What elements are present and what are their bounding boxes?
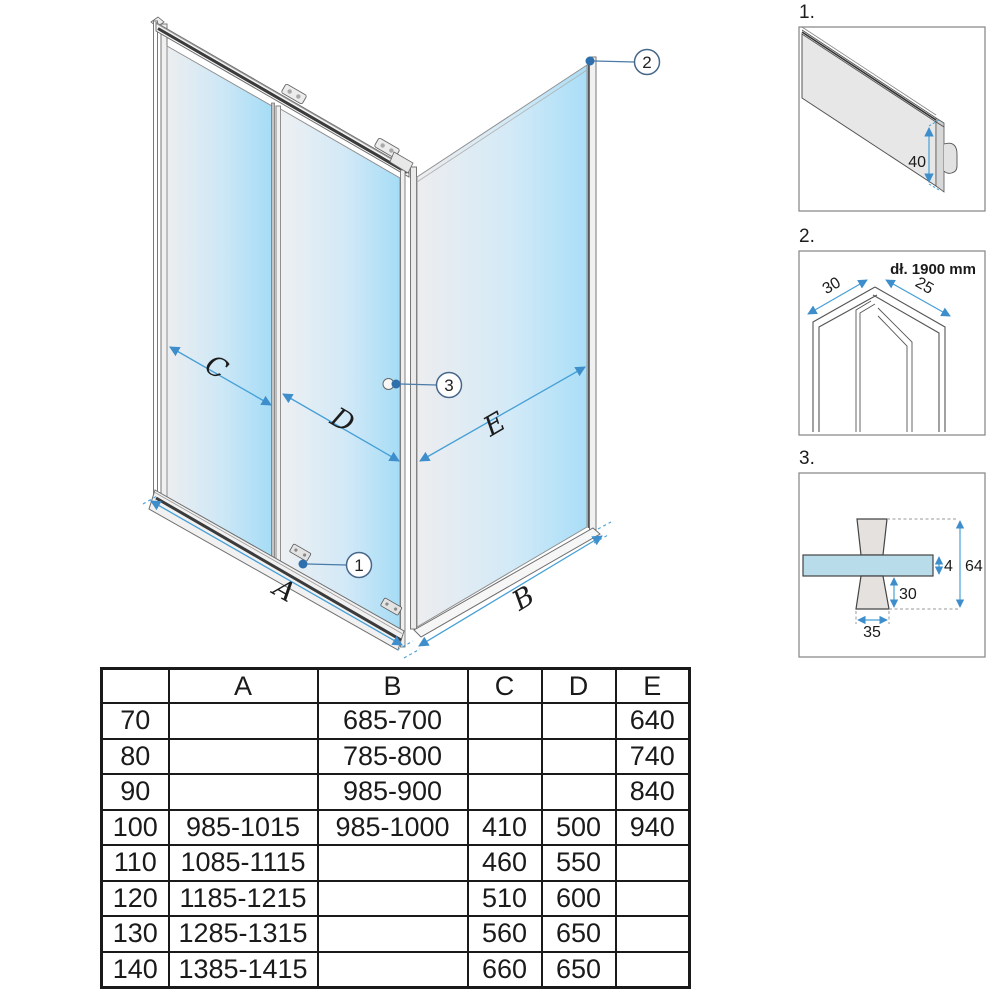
cell-e: [616, 952, 690, 988]
table-row: 110 1085-1115 460 550: [102, 845, 690, 881]
callout-dot: [392, 380, 401, 389]
cell-a: [169, 774, 318, 810]
cell-a: 1085-1115: [169, 845, 318, 881]
cell-b: 985-900: [318, 774, 468, 810]
detail-2: 2. dł. 1900 mm 30: [798, 226, 988, 436]
detail-3-label: 3.: [799, 448, 988, 470]
panel-seam-profile: [272, 103, 281, 576]
cell-c: [468, 739, 542, 775]
dim-4: 4: [944, 558, 953, 575]
cell-d: 650: [542, 916, 616, 952]
cell-e: [616, 881, 690, 917]
dim-40: 40: [908, 154, 926, 171]
knob-top: [857, 519, 887, 555]
fixed-panel-glass: [167, 46, 272, 568]
detail-2-label: 2.: [799, 226, 988, 248]
row-label: 140: [102, 952, 169, 988]
cell-e: 940: [616, 810, 690, 846]
side-wall-profile: [589, 57, 597, 531]
detail-3: 3.: [798, 448, 988, 658]
table-row: 100 985-1015 985-1000 410 500 940: [102, 810, 690, 846]
cell-d: [542, 774, 616, 810]
row-label: 120: [102, 881, 169, 917]
glass-section: [803, 555, 933, 576]
cell-a: [169, 739, 318, 775]
row-label: 130: [102, 916, 169, 952]
dim-64: 64: [965, 558, 983, 575]
cell-b: [318, 845, 468, 881]
row-label: 100: [102, 810, 169, 846]
cell-d: 500: [542, 810, 616, 846]
dim-label-b: B: [506, 580, 540, 617]
length-note: dł. 1900 mm: [890, 261, 976, 278]
cell-d: [542, 703, 616, 739]
cell-c: 660: [468, 952, 542, 988]
cell-a: [169, 703, 318, 739]
cell-d: 650: [542, 952, 616, 988]
header-a: A: [169, 669, 318, 704]
cell-a: 1185-1215: [169, 881, 318, 917]
callout-number-2: 2: [642, 53, 651, 72]
row-label: 110: [102, 845, 169, 881]
cell-c: [468, 774, 542, 810]
cell-b: [318, 881, 468, 917]
cell-e: 840: [616, 774, 690, 810]
cell-a: 985-1015: [169, 810, 318, 846]
cell-c: 560: [468, 916, 542, 952]
sliding-door-glass: [281, 109, 401, 644]
cell-b: 785-800: [318, 739, 468, 775]
cell-b: [318, 916, 468, 952]
row-label: 70: [102, 703, 169, 739]
side-panel-glass: [417, 65, 587, 627]
cell-c: 410: [468, 810, 542, 846]
wall-clip-hook: [944, 143, 957, 173]
table-row: 130 1285-1315 560 650: [102, 916, 690, 952]
cell-e: [616, 845, 690, 881]
callout-dot: [299, 560, 308, 569]
callout-number-3: 3: [444, 376, 453, 395]
table-row: 140 1385-1415 660 650: [102, 952, 690, 988]
cell-c: 460: [468, 845, 542, 881]
shower-enclosure-drawing: C D E A B 1 3 2: [0, 0, 760, 665]
row-label: 90: [102, 774, 169, 810]
cell-e: 640: [616, 703, 690, 739]
left-wall-profile: [151, 17, 167, 507]
cell-c: [468, 703, 542, 739]
table-header-row: A B C D E: [102, 669, 690, 704]
cell-a: 1385-1415: [169, 952, 318, 988]
table-row: 120 1185-1215 510 600: [102, 881, 690, 917]
detail-1-label: 1.: [799, 2, 988, 24]
cell-b: 985-1000: [318, 810, 468, 846]
callout-number-1: 1: [354, 556, 363, 575]
table-row: 70 685-700 640: [102, 703, 690, 739]
door-right-stile: [401, 170, 406, 647]
detail-3-drawing: 4 64 30 35: [798, 472, 986, 658]
cell-b: 685-700: [318, 703, 468, 739]
cell-d: [542, 739, 616, 775]
cell-c: 510: [468, 881, 542, 917]
dim-30b: 30: [899, 586, 917, 603]
cell-e: [616, 916, 690, 952]
detail-1-drawing: 40: [798, 26, 986, 212]
dimensions-table: A B C D E 70 685-700 640 80 785-800: [100, 667, 691, 989]
cell-e: 740: [616, 739, 690, 775]
cell-b: [318, 952, 468, 988]
header-b: B: [318, 669, 468, 704]
header-d: D: [542, 669, 616, 704]
cell-d: 550: [542, 845, 616, 881]
callout-dot: [586, 57, 595, 66]
header-blank: [102, 669, 169, 704]
cell-d: 600: [542, 881, 616, 917]
cell-a: 1285-1315: [169, 916, 318, 952]
dim-35: 35: [863, 624, 881, 641]
table-row: 90 985-900 840: [102, 774, 690, 810]
header-c: C: [468, 669, 542, 704]
table-row: 80 785-800 740: [102, 739, 690, 775]
technical-sheet: C D E A B 1 3 2: [0, 0, 1000, 1000]
header-e: E: [616, 669, 690, 704]
row-label: 80: [102, 739, 169, 775]
detail-2-drawing: dł. 1900 mm 30 25: [798, 250, 986, 436]
knob-bottom: [856, 576, 889, 609]
detail-1: 1. 40: [798, 2, 988, 212]
